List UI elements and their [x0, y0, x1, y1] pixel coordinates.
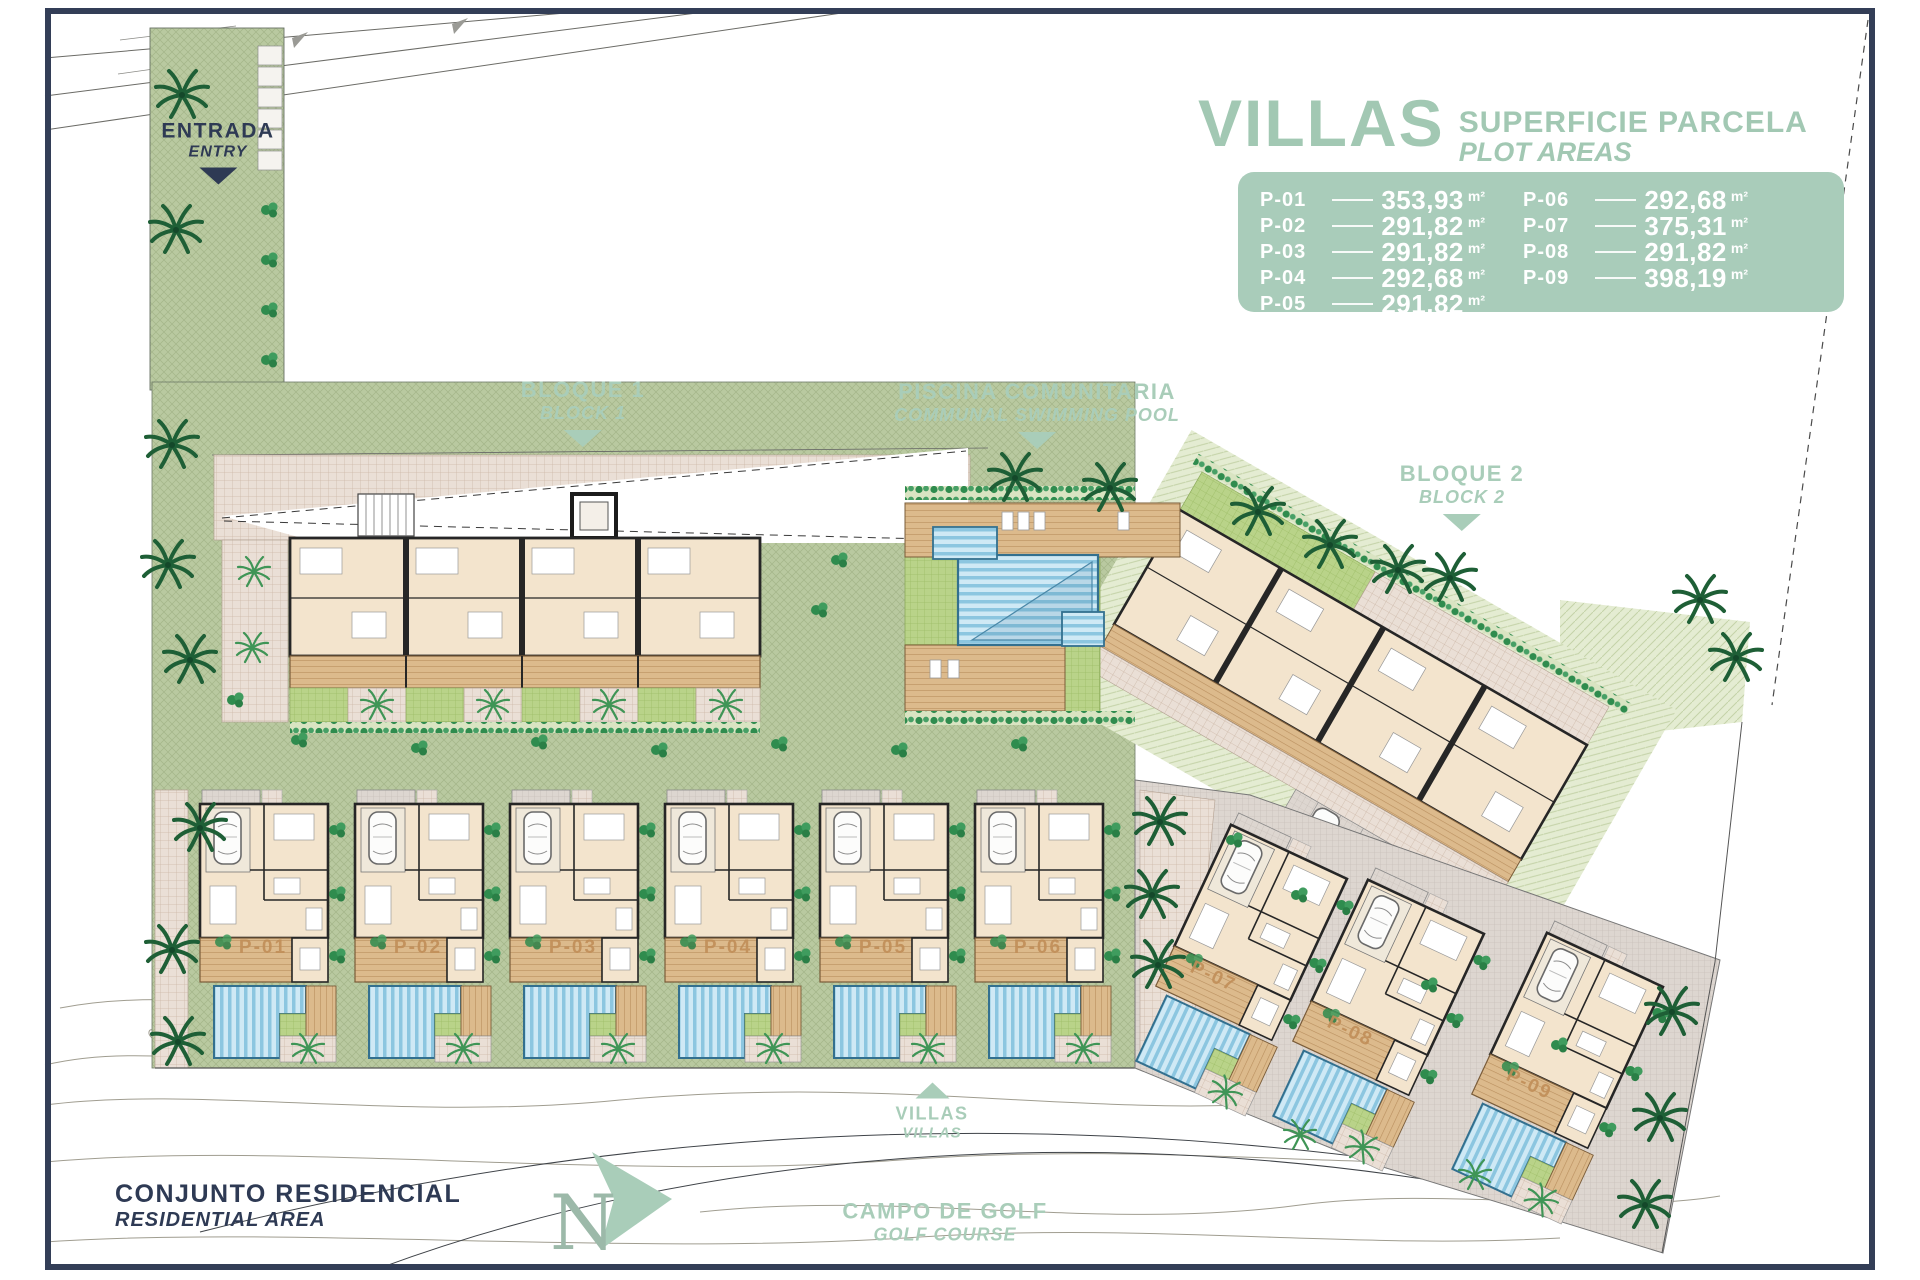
plot-id: P-02 [1260, 215, 1324, 238]
entry-arrow-icon [199, 168, 237, 185]
plot-area-unit: m² [1468, 214, 1485, 230]
plot-area-row: P-08 291,82 m² [1523, 239, 1748, 265]
plot-id: P-08 [1523, 241, 1587, 264]
plot-id: P-09 [1523, 267, 1587, 290]
legend-title-text: VILLAS [1198, 92, 1445, 155]
plot-area-row: P-03 291,82 m² [1260, 239, 1485, 265]
plot-areas-right-column: P-06 292,68 m² P-07 375,31 m² P-08 291,8… [1523, 187, 1748, 300]
plot-area-row: P-01 353,93 m² [1260, 187, 1485, 213]
plot-area-value: 291,82 [1381, 289, 1464, 320]
pool-arrow-icon [1018, 432, 1056, 449]
block1-courtyard [222, 540, 288, 722]
leader-line [1595, 277, 1636, 279]
villas-arrow-icon [915, 1083, 949, 1099]
villa-plot-label: P-04 [704, 937, 752, 959]
plot-id: P-04 [1260, 267, 1324, 290]
plot-id: P-03 [1260, 241, 1324, 264]
plot-area-row: P-07 375,31 m² [1523, 213, 1748, 239]
plot-area-unit: m² [1468, 292, 1485, 308]
block2-label: BLOQUE 2 BLOCK 2 [1400, 461, 1524, 531]
plot-area-unit: m² [1468, 188, 1485, 204]
legend-title: VILLAS SUPERFICIE PARCELA PLOT AREAS [1198, 92, 1808, 166]
pool-deck-bottom [905, 645, 1065, 711]
block1-hedge [290, 722, 760, 733]
plot-area-value: 398,19 [1644, 263, 1727, 294]
pool-label: PISCINA COMUNITARIA COMMUNAL SWIMMING PO… [894, 379, 1180, 449]
block1-label: BLOQUE 1 BLOCK 1 [521, 377, 645, 447]
villa-plot-label: P-06 [1014, 937, 1062, 959]
north-letter: N [550, 1178, 617, 1267]
leader-line [1595, 251, 1636, 253]
leader-line [1332, 251, 1373, 253]
block2-arrow-icon [1443, 514, 1481, 531]
plot-area-row: P-06 292,68 m² [1523, 187, 1748, 213]
villa-plot-label: P-05 [859, 937, 907, 959]
pool-steps [1062, 612, 1104, 646]
block1-stairs [358, 494, 414, 536]
plot-id: P-05 [1260, 293, 1324, 316]
villa-plot-label: P-02 [394, 937, 442, 959]
plot-area-row: P-04 292,68 m² [1260, 265, 1485, 291]
plot-area-unit: m² [1731, 266, 1748, 282]
plot-areas-panel: P-01 353,93 m² P-02 291,82 m² P-03 291,8… [1238, 172, 1844, 312]
plot-area-row: P-02 291,82 m² [1260, 213, 1485, 239]
plot-id: P-06 [1523, 189, 1587, 212]
leader-line [1332, 199, 1373, 201]
leader-line [1595, 225, 1636, 227]
block1-gardens [290, 688, 760, 722]
leader-line [1332, 303, 1373, 305]
plot-areas-left-column: P-01 353,93 m² P-02 291,82 m² P-03 291,8… [1260, 187, 1485, 300]
legend-subtitle-en: PLOT AREAS [1459, 138, 1808, 166]
legend-subtitle-es: SUPERFICIE PARCELA [1459, 108, 1808, 138]
jacuzzi-pool [933, 527, 997, 559]
plot-area-unit: m² [1731, 240, 1748, 256]
leader-line [1332, 277, 1373, 279]
plot-id: P-07 [1523, 215, 1587, 238]
block1-terraces [290, 656, 760, 688]
plot-area-unit: m² [1731, 214, 1748, 230]
leader-line [1332, 225, 1373, 227]
plot-area-row: P-09 398,19 m² [1523, 265, 1748, 291]
plot-id: P-01 [1260, 189, 1324, 212]
plot-area-unit: m² [1731, 188, 1748, 204]
block1-arrow-icon [564, 430, 602, 447]
golf-label: CAMPO DE GOLF GOLF COURSE [842, 1199, 1047, 1246]
villa-plot-label: P-03 [549, 937, 597, 959]
site-plan-sheet: VILLAS SUPERFICIE PARCELA PLOT AREAS P-0… [0, 0, 1920, 1280]
villa-plot-label: P-01 [239, 937, 287, 959]
plot-area-unit: m² [1468, 266, 1485, 282]
entry-label: ENTRADA ENTRY [161, 120, 274, 185]
plot-area-unit: m² [1468, 240, 1485, 256]
leader-line [1595, 199, 1636, 201]
residential-label: CONJUNTO RESIDENCIAL RESIDENTIAL AREA [115, 1180, 461, 1232]
villas-label: VILLAS VILLAS [895, 1083, 968, 1142]
north-arrow: N [548, 1150, 688, 1265]
plot-area-row: P-05 291,82 m² [1260, 291, 1485, 317]
block1-elevator [572, 494, 616, 538]
